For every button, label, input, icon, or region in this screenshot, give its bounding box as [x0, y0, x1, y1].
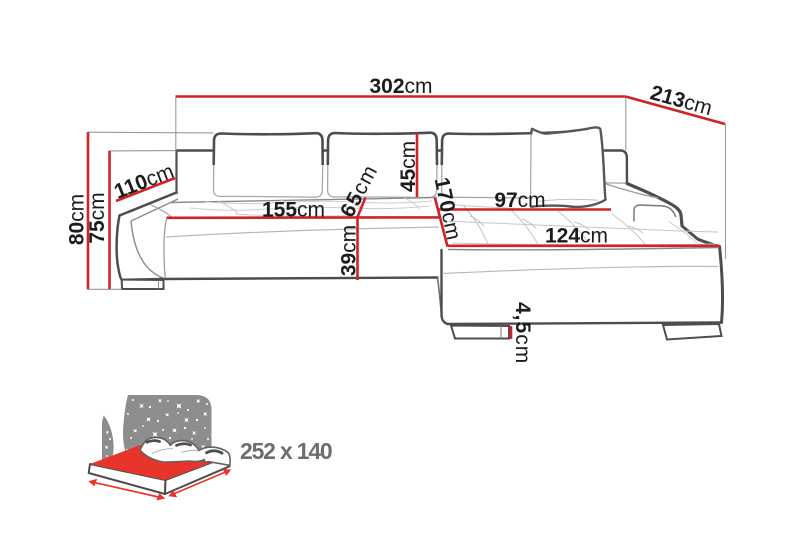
svg-text:124cm: 124cm: [545, 225, 608, 248]
svg-text:39cm: 39cm: [338, 225, 361, 276]
svg-text:155cm: 155cm: [262, 198, 325, 221]
svg-text:45cm: 45cm: [397, 141, 420, 192]
svg-text:302cm: 302cm: [369, 75, 432, 98]
svg-text:4,5cm: 4,5cm: [511, 302, 534, 364]
svg-text:97cm: 97cm: [494, 189, 545, 212]
svg-text:252 x 140: 252 x 140: [240, 438, 332, 464]
svg-text:75cm: 75cm: [86, 192, 109, 243]
